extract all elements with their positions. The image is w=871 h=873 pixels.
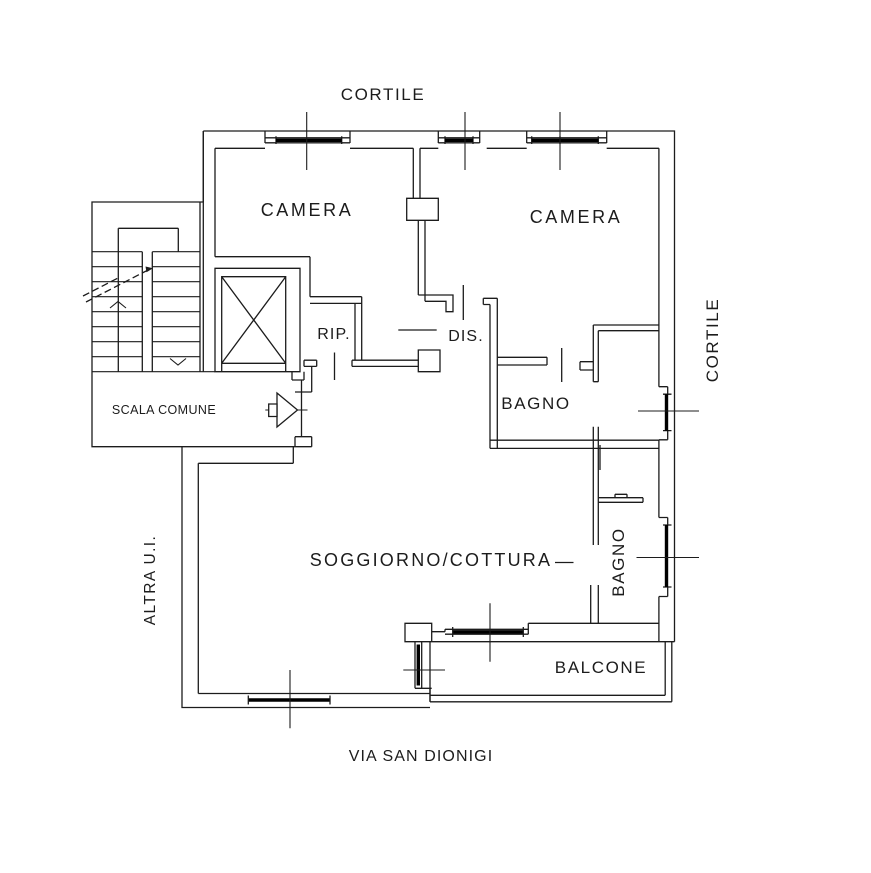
room-label-scala-comune: SCALA COMUNE bbox=[112, 403, 216, 417]
room-label-bagno-upper: BAGNO bbox=[501, 394, 570, 413]
bottom-facade-windows bbox=[248, 603, 523, 728]
label-cortile-right: CORTILE bbox=[703, 298, 722, 383]
label-via-san-dionigi: VIA SAN DIONIGI bbox=[349, 748, 494, 765]
room-label-camera-right: CAMERA bbox=[530, 207, 623, 227]
arrow-head bbox=[277, 393, 298, 427]
bagno-upper-walls bbox=[483, 298, 659, 470]
window-axis-ticks-bottom bbox=[290, 603, 490, 728]
room-label-soggiorno: SOGGIORNO/COTTURA bbox=[310, 550, 552, 570]
floor-plan-page: CORTILE CORTILE CAMERA CAMERA RIP. DIS. … bbox=[0, 0, 871, 873]
floor-plan-drawing: CORTILE CORTILE CAMERA CAMERA RIP. DIS. … bbox=[0, 0, 871, 873]
interior-walls bbox=[215, 148, 675, 702]
stairs bbox=[83, 131, 215, 372]
camera-partition-wall bbox=[407, 148, 453, 311]
room-label-dis: DIS. bbox=[448, 328, 484, 345]
window-axis-ticks-top bbox=[307, 112, 560, 170]
room-label-rip: RIP. bbox=[317, 326, 350, 343]
stair-down-arrow bbox=[170, 359, 186, 366]
room-label-camera-left: CAMERA bbox=[261, 200, 354, 220]
right-facade-windows bbox=[637, 387, 700, 597]
bagno-lower-walls bbox=[555, 427, 643, 624]
elevator bbox=[215, 268, 300, 371]
label-altra-ui: ALTRA U.I. bbox=[142, 535, 159, 625]
top-facade-windows bbox=[265, 112, 607, 170]
entrance-walls bbox=[292, 366, 312, 446]
room-label-bagno-lower: BAGNO bbox=[609, 527, 628, 596]
room-label-balcone: BALCONE bbox=[555, 658, 647, 677]
bottom-walls bbox=[405, 623, 675, 641]
stair-treads bbox=[92, 252, 215, 372]
label-cortile-top: CORTILE bbox=[341, 85, 426, 104]
arrow-tail bbox=[269, 404, 277, 417]
